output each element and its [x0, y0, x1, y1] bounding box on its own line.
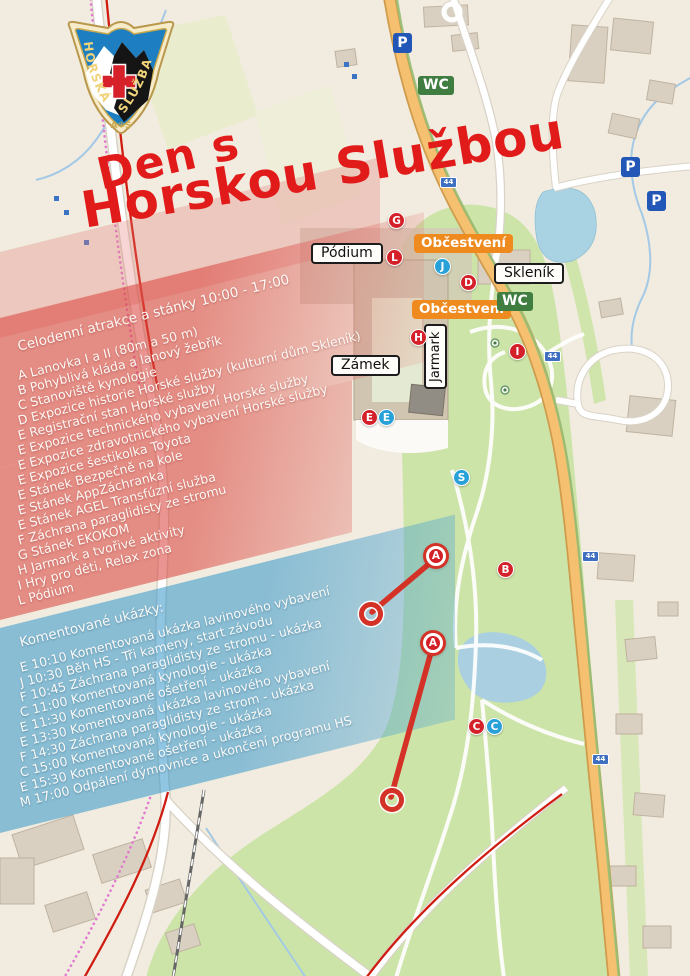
marker-L: L — [386, 249, 403, 266]
route-44-badge: 44 — [544, 351, 561, 362]
route-44-badge: 44 — [592, 754, 609, 765]
route-44-badge: 44 — [582, 551, 599, 562]
label-jarmark: Jarmark — [424, 324, 447, 389]
label-jarmark-text: Jarmark — [426, 326, 445, 387]
horska-sluzba-badge: HORSKÁ SLUŽBA A❄S — [56, 18, 186, 144]
marker-C-red: C — [468, 718, 485, 735]
marker-C-blue: C — [486, 718, 503, 735]
label-podium: Pódium — [311, 243, 383, 264]
marker-E-red: E — [361, 409, 378, 426]
marker-S: S — [453, 469, 470, 486]
marker-I: I — [509, 343, 526, 360]
event-poster: Den s Horskou Službou Celodenní atrakce … — [0, 0, 690, 976]
marker-A-south: A — [423, 633, 443, 653]
lanovka-route-lines — [0, 0, 690, 976]
route-endpoint-ring — [380, 788, 404, 812]
marker-H: H — [410, 329, 427, 346]
marker-A-north: A — [426, 546, 446, 566]
marker-D: D — [460, 274, 477, 291]
logo-text-bottom: A❄S — [111, 121, 132, 131]
label-wc-north: WC — [418, 76, 454, 95]
label-sklenik: Skleník — [494, 263, 564, 284]
label-refreshment-north: Občestvení — [414, 234, 513, 253]
parking-icon: P — [621, 157, 640, 177]
label-wc-center: WC — [497, 292, 533, 311]
label-zamek: Zámek — [331, 355, 400, 376]
route-44-badge: 44 — [440, 177, 457, 188]
marker-B: B — [497, 561, 514, 578]
marker-E-blue: E — [378, 409, 395, 426]
marker-J: J — [434, 258, 451, 275]
parking-icon: P — [393, 33, 412, 53]
marker-G: G — [388, 212, 405, 229]
route-endpoint-ring — [359, 602, 383, 626]
parking-icon: P — [647, 191, 666, 211]
